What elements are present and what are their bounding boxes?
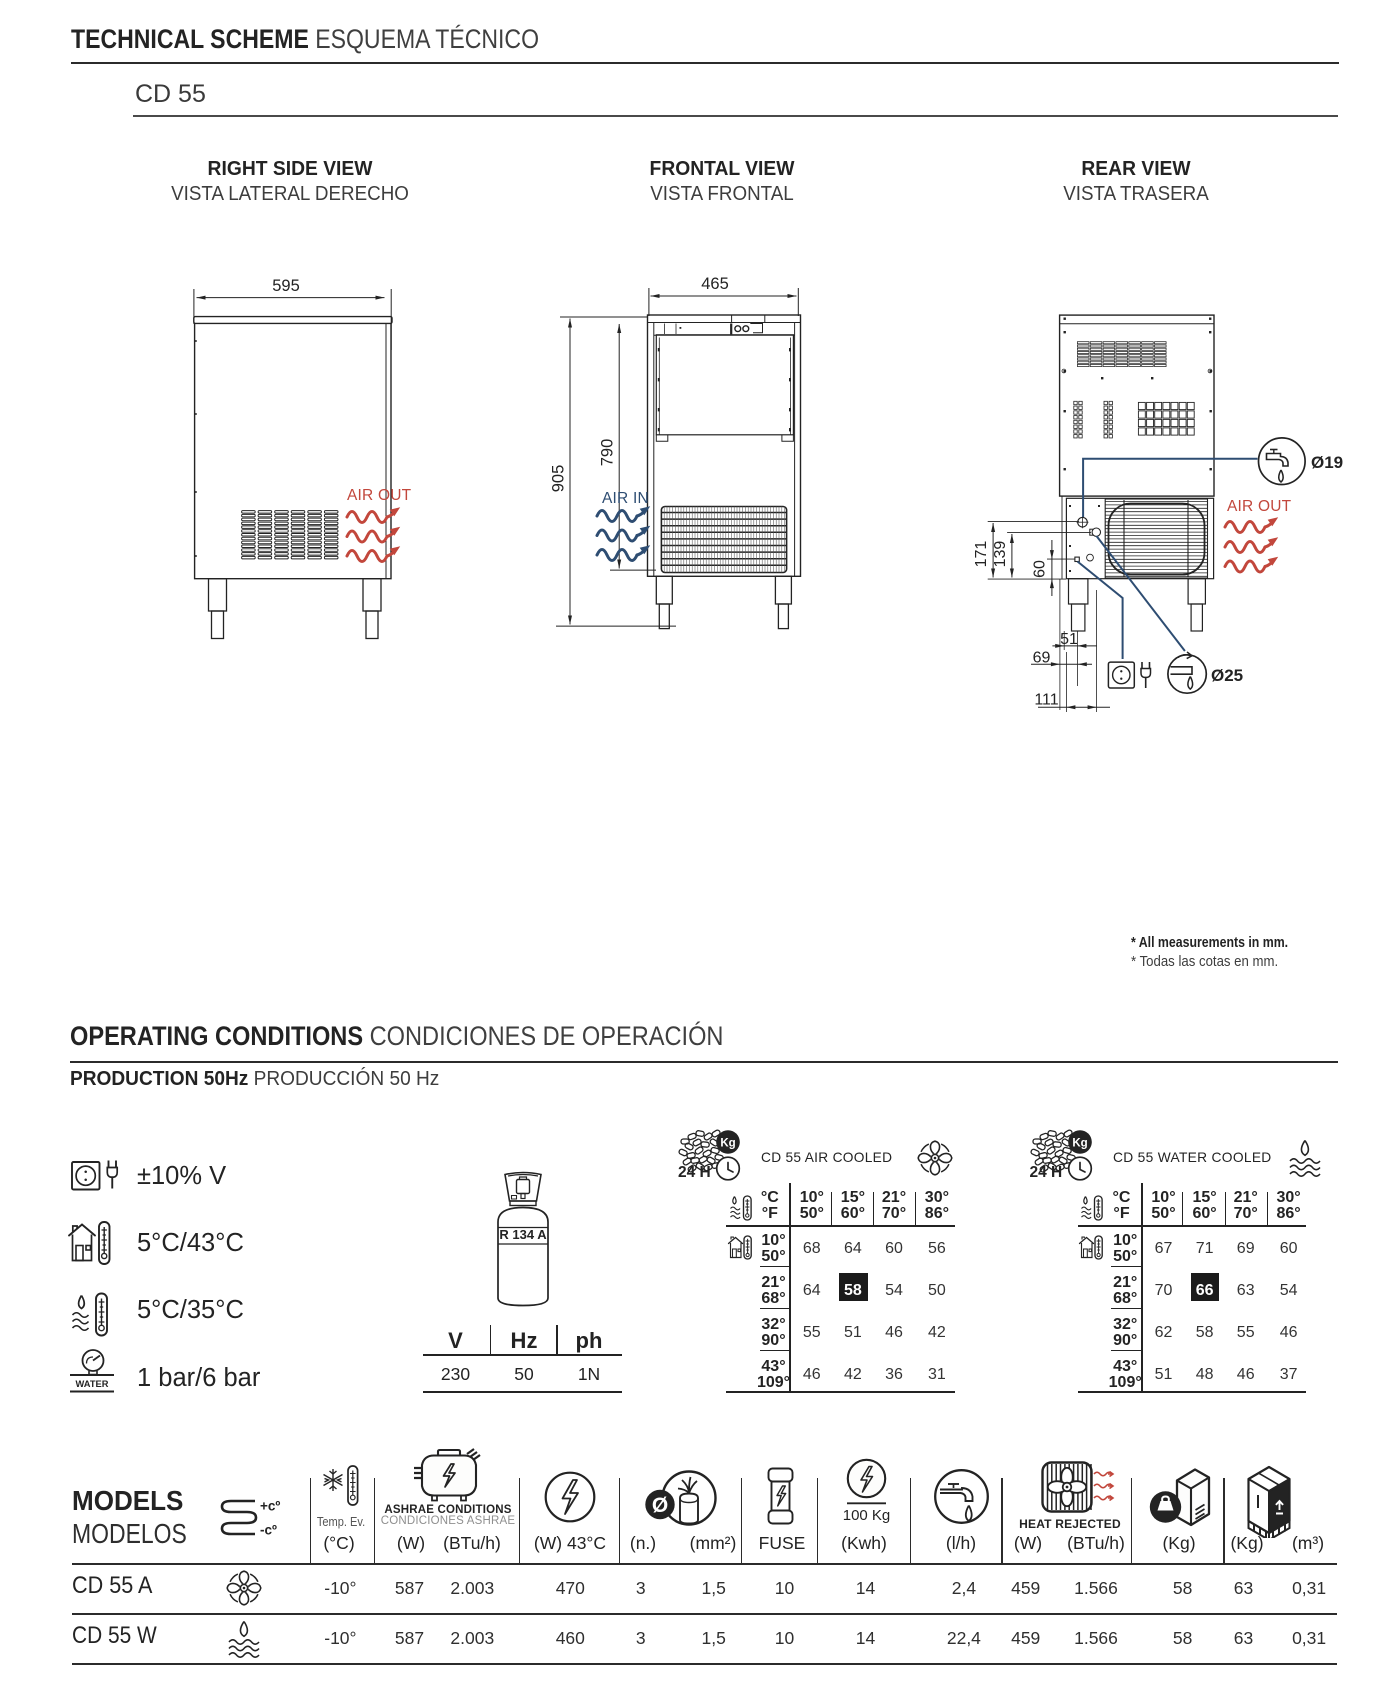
svg-text:465: 465 bbox=[701, 275, 729, 293]
svg-text:-cº: -cº bbox=[260, 1523, 277, 1538]
svg-text:595: 595 bbox=[272, 277, 300, 295]
svg-text:100 Kg: 100 Kg bbox=[843, 1507, 891, 1524]
svg-text:Ø19: Ø19 bbox=[1311, 453, 1343, 472]
svg-text:171: 171 bbox=[973, 541, 990, 568]
svg-text:139: 139 bbox=[992, 541, 1009, 568]
svg-text:790: 790 bbox=[599, 439, 617, 467]
svg-text:Ø25: Ø25 bbox=[1211, 666, 1243, 685]
svg-text:R 134 A: R 134 A bbox=[499, 1227, 547, 1242]
svg-text:Kg: Kg bbox=[1072, 1137, 1087, 1149]
svg-text:111: 111 bbox=[1034, 692, 1058, 709]
svg-text:905: 905 bbox=[550, 465, 568, 493]
svg-text:Ø: Ø bbox=[652, 1494, 668, 1517]
svg-text:+cº: +cº bbox=[260, 1499, 280, 1514]
svg-text:AIR OUT: AIR OUT bbox=[347, 487, 412, 504]
svg-text:WATER: WATER bbox=[76, 1379, 109, 1389]
svg-text:Kg: Kg bbox=[720, 1137, 735, 1149]
svg-text:AIR OUT: AIR OUT bbox=[1227, 498, 1292, 515]
svg-text:AIR IN: AIR IN bbox=[602, 490, 649, 507]
svg-text:60: 60 bbox=[1032, 560, 1049, 578]
